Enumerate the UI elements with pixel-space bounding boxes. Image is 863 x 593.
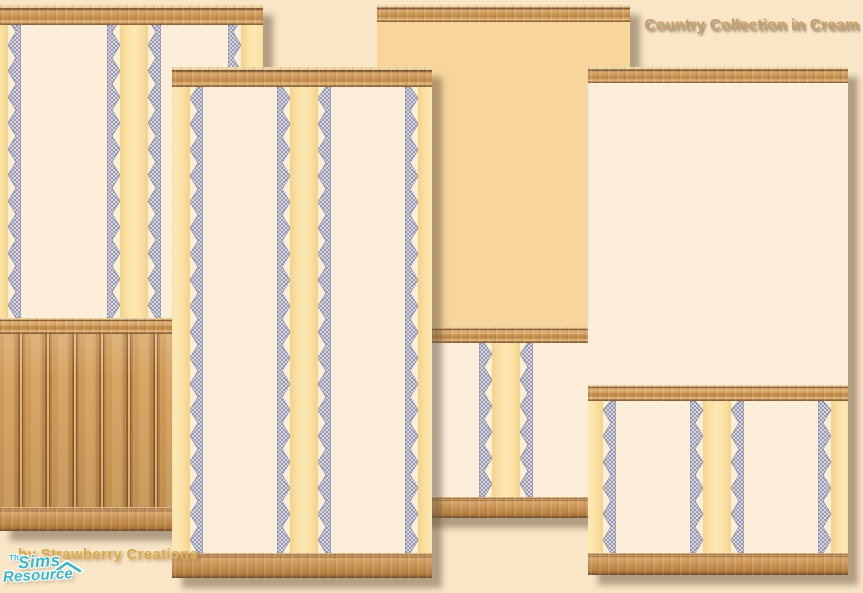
zigzag-trim (8, 25, 21, 318)
zigzag-trim (318, 87, 331, 553)
striped-wallpaper (588, 401, 848, 553)
tsr-wallpaper-preview: Country Collection in Cream by Strawberr… (0, 0, 863, 593)
tsr-logo: The Sims Resource (2, 552, 94, 592)
panel-cream-top-chair-rail (588, 67, 848, 575)
zigzag-trim (818, 401, 831, 553)
panel-full-stripes (172, 67, 432, 578)
crown-molding (377, 5, 630, 22)
baseboard (172, 553, 432, 578)
wallpaper-stripe (0, 25, 21, 318)
wallpaper-stripe (588, 401, 616, 553)
stripe-yellow-band (0, 25, 8, 318)
stripe-yellow-band (172, 87, 190, 553)
wallpaper-stripe (405, 87, 432, 553)
stripe-yellow-band (831, 401, 848, 553)
zigzag-trim (107, 25, 120, 318)
wallpaper-stripe (277, 87, 331, 553)
zigzag-trim (731, 401, 744, 553)
striped-wallpaper (172, 87, 432, 553)
zigzag-trim (479, 343, 492, 497)
zigzag-trim (520, 343, 533, 497)
chair-rail (588, 385, 848, 401)
baseboard (588, 553, 848, 575)
collection-title: Country Collection in Cream (644, 17, 859, 35)
zigzag-trim (190, 87, 203, 553)
zigzag-trim (603, 401, 616, 553)
zigzag-trim (405, 87, 418, 553)
wallpaper-stripe (172, 87, 203, 553)
wallpaper-stripe (690, 401, 744, 553)
plain-wallpaper-cream (588, 83, 848, 385)
stripe-yellow-band (290, 87, 318, 553)
stripe-yellow-band (418, 87, 432, 553)
tsr-logo-resource-text: Resource (3, 565, 74, 586)
wallpaper-stripe (479, 343, 533, 497)
stripe-yellow-band (703, 401, 731, 553)
crown-molding (0, 5, 263, 25)
stripe-yellow-band (588, 401, 603, 553)
stripe-yellow-band (120, 25, 148, 318)
crown-molding (588, 67, 848, 83)
stripe-yellow-band (492, 343, 520, 497)
zigzag-trim (148, 25, 161, 318)
wallpaper-stripe (818, 401, 848, 553)
zigzag-trim (277, 87, 290, 553)
wallpaper-stripe (107, 25, 161, 318)
zigzag-trim (690, 401, 703, 553)
crown-molding (172, 67, 432, 87)
